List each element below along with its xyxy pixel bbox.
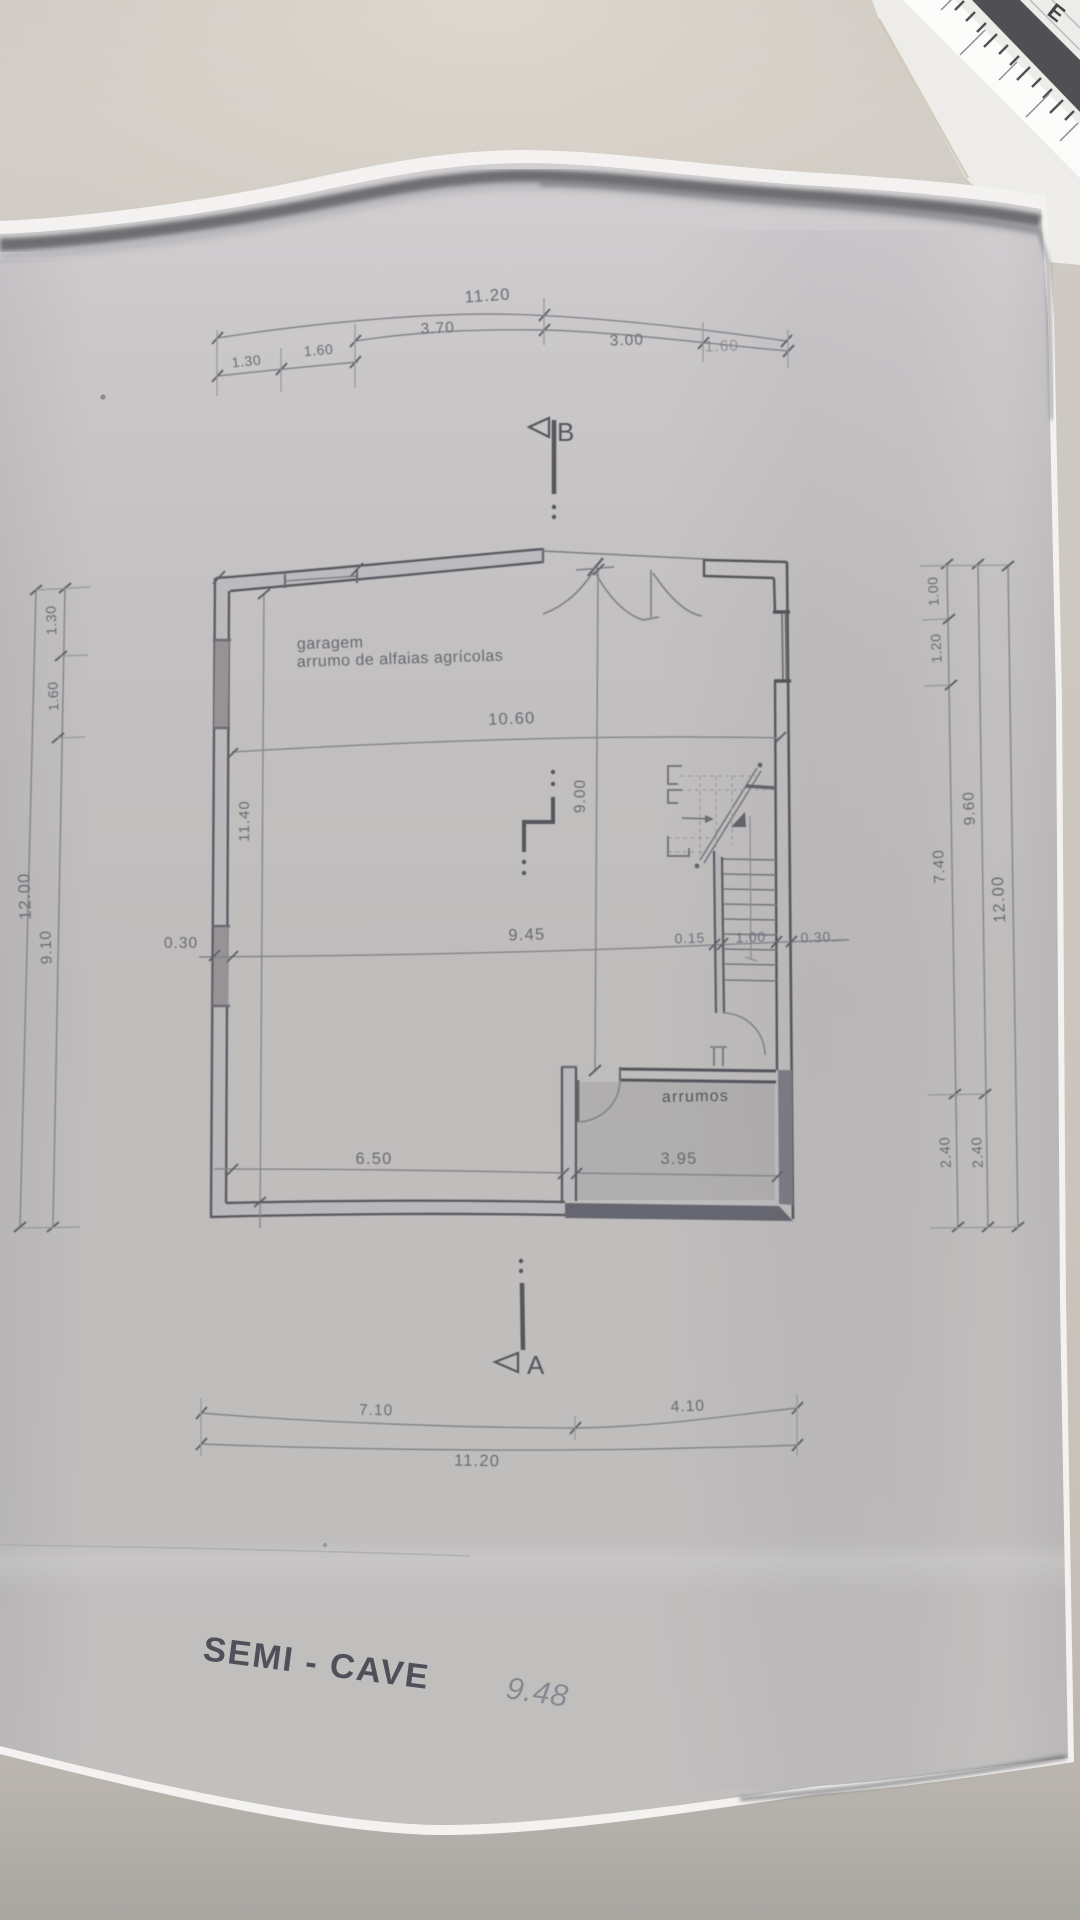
svg-text:0.30: 0.30 [164, 935, 198, 952]
svg-text:1.60: 1.60 [44, 681, 61, 711]
svg-text:9.60: 9.60 [960, 791, 979, 826]
svg-text:12.00: 12.00 [989, 875, 1009, 923]
svg-text:1.60: 1.60 [303, 341, 334, 360]
svg-text:11.40: 11.40 [236, 800, 253, 841]
svg-text:A: A [527, 1350, 545, 1380]
svg-text:9.10: 9.10 [37, 930, 55, 965]
svg-text:garagem: garagem [297, 634, 364, 653]
svg-text:3.95: 3.95 [661, 1150, 698, 1168]
svg-text:1.00: 1.00 [924, 576, 942, 606]
svg-text:11.20: 11.20 [464, 285, 511, 306]
svg-text:12.00: 12.00 [15, 872, 35, 920]
svg-text:1.30: 1.30 [42, 605, 59, 635]
svg-text:0.15: 0.15 [674, 929, 705, 946]
svg-text:9.45: 9.45 [508, 926, 545, 945]
svg-text:4.10: 4.10 [670, 1397, 705, 1415]
svg-text:3.70: 3.70 [420, 319, 455, 338]
svg-text:1.30: 1.30 [231, 352, 262, 371]
svg-text:9.00: 9.00 [572, 779, 589, 813]
svg-text:10.60: 10.60 [488, 709, 536, 729]
svg-text:11.20: 11.20 [454, 1452, 500, 1471]
svg-text:2.40: 2.40 [937, 1136, 955, 1168]
svg-text:1.20: 1.20 [927, 633, 945, 663]
svg-text:0.30: 0.30 [800, 928, 831, 945]
svg-text:6.50: 6.50 [356, 1150, 393, 1168]
svg-text:1.00: 1.00 [735, 928, 766, 945]
svg-text:3.00: 3.00 [609, 331, 644, 349]
svg-text:arrumos: arrumos [662, 1088, 729, 1106]
svg-text:1.60: 1.60 [704, 337, 739, 355]
svg-text:2.40: 2.40 [969, 1136, 987, 1168]
svg-text:7.10: 7.10 [359, 1402, 393, 1420]
svg-text:B: B [557, 417, 574, 447]
svg-text:7.40: 7.40 [930, 849, 949, 884]
